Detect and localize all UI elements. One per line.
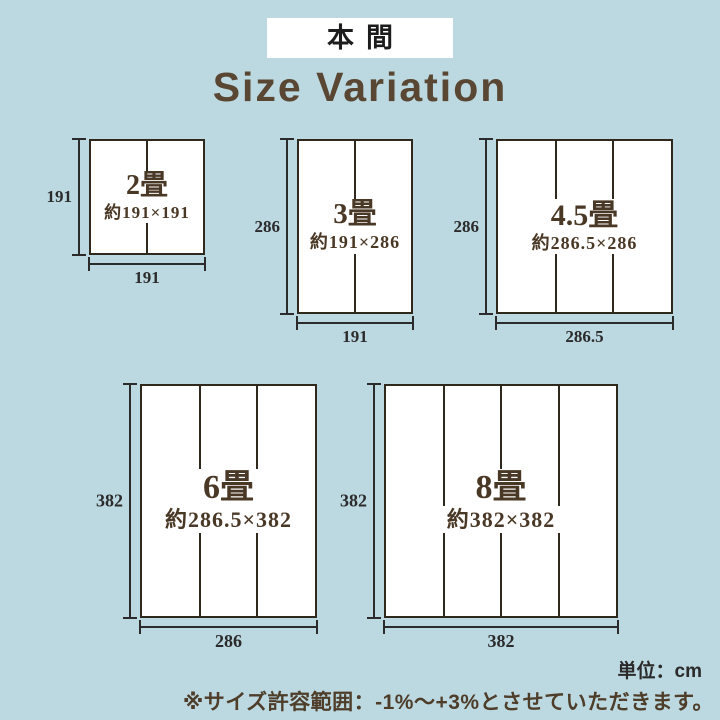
- mat-labels: 8畳 約382×382: [384, 384, 618, 618]
- mat-labels: 4.5畳 約286.5×286: [496, 139, 673, 314]
- size-figure-8jo: 8畳 約382×382 382 382: [384, 384, 618, 618]
- mat-labels: 6畳 約286.5×382: [140, 384, 317, 618]
- height-dim-line: [485, 138, 487, 315]
- size-label: 6畳: [196, 469, 261, 506]
- standard-badge-label: 本間: [315, 25, 405, 52]
- size-label: 4.5畳: [544, 199, 626, 232]
- size-dimensions-label: 約286.5×286: [527, 232, 643, 255]
- size-dimensions-label: 約382×382: [442, 506, 561, 533]
- width-dim-value: 286: [215, 631, 242, 652]
- height-dim-line: [286, 138, 288, 315]
- width-dim-line: [383, 626, 619, 628]
- size-label: 8畳: [469, 469, 534, 506]
- height-dim-value: 286: [255, 217, 281, 237]
- width-dim-line: [88, 263, 206, 265]
- width-dim-value: 191: [134, 268, 160, 288]
- size-dimensions-label: 約191×286: [305, 231, 405, 254]
- size-figure-3jo: 3畳 約191×286 286 191: [297, 139, 413, 314]
- height-dim-value: 286: [454, 217, 480, 237]
- size-label: 2畳: [119, 171, 175, 202]
- tolerance-note: ※サイズ許容範囲：-1%〜+3%とさせていただきます。: [183, 686, 714, 716]
- size-variation-infographic: 本間 Size Variation 2畳 約191×191 191 191 3畳…: [0, 0, 720, 720]
- height-dim-value: 382: [340, 491, 367, 512]
- page-title: Size Variation: [0, 66, 720, 109]
- size-figure-6jo: 6畳 約286.5×382 382 286: [140, 384, 317, 618]
- mat-labels: 2畳 約191×191: [89, 139, 205, 255]
- width-dim-value: 382: [488, 631, 515, 652]
- width-dim-line: [139, 626, 318, 628]
- size-label: 3畳: [326, 199, 384, 231]
- size-dimensions-label: 約191×191: [99, 202, 195, 224]
- width-dim-line: [495, 322, 674, 324]
- height-dim-line: [373, 383, 375, 619]
- height-dim-value: 382: [96, 491, 123, 512]
- height-dim-value: 191: [47, 187, 73, 207]
- height-dim-line: [129, 383, 131, 619]
- size-dimensions-label: 約286.5×382: [160, 506, 297, 533]
- height-dim-line: [78, 138, 80, 256]
- width-dim-line: [296, 322, 414, 324]
- width-dim-value: 191: [342, 327, 368, 347]
- mat-labels: 3畳 約191×286: [297, 139, 413, 314]
- width-dim-value: 286.5: [565, 327, 603, 347]
- size-figure-2jo: 2畳 約191×191 191 191: [89, 139, 205, 255]
- unit-note: 単位：cm: [618, 656, 702, 683]
- size-figure-4-5jo: 4.5畳 約286.5×286 286 286.5: [496, 139, 673, 314]
- standard-badge: 本間: [267, 18, 453, 58]
